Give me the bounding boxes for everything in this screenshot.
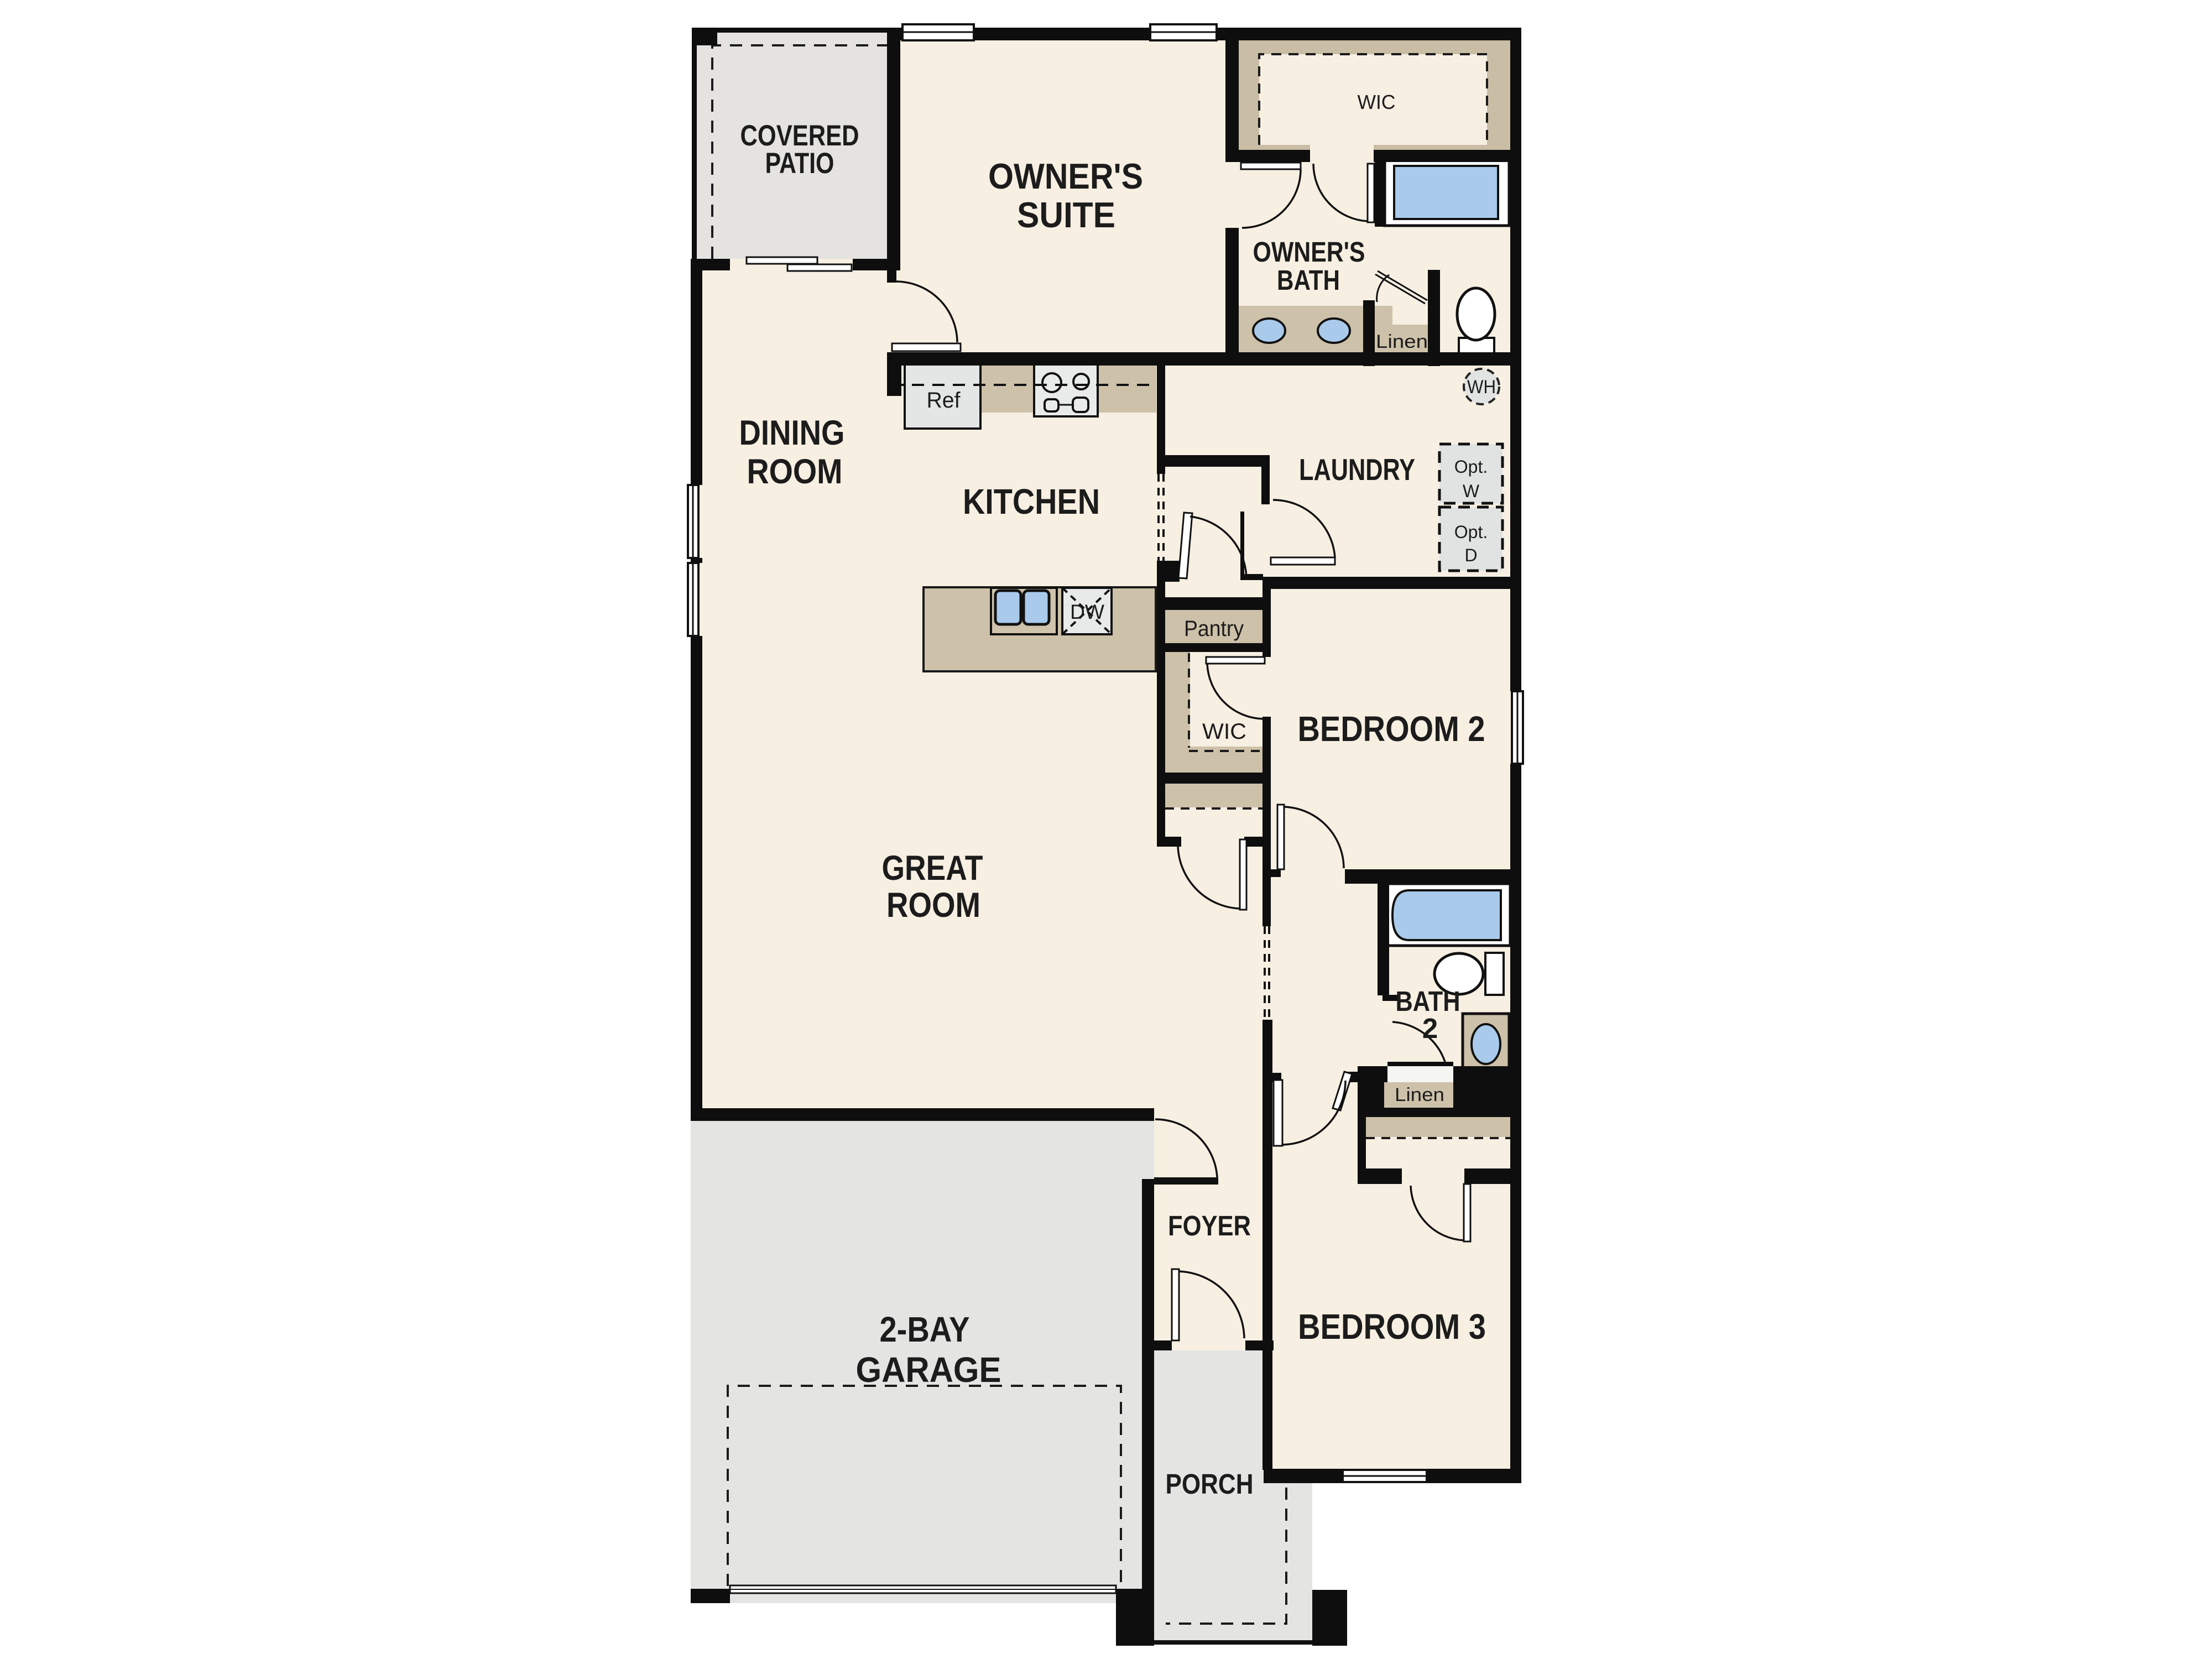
- svg-text:PATIO: PATIO: [765, 147, 834, 180]
- svg-text:GARAGE: GARAGE: [856, 1350, 1001, 1390]
- svg-text:WIC: WIC: [1202, 719, 1246, 744]
- svg-text:FOYER: FOYER: [1168, 1210, 1251, 1241]
- svg-text:DW: DW: [1070, 601, 1104, 623]
- svg-text:BEDROOM 3: BEDROOM 3: [1298, 1307, 1486, 1347]
- svg-text:DINING: DINING: [739, 414, 845, 452]
- svg-text:2-BAY: 2-BAY: [880, 1310, 970, 1349]
- svg-text:KITCHEN: KITCHEN: [963, 482, 1100, 521]
- svg-text:Linen: Linen: [1395, 1084, 1444, 1105]
- svg-text:Opt.: Opt.: [1454, 522, 1488, 542]
- svg-text:Linen: Linen: [1376, 331, 1428, 352]
- svg-text:BEDROOM 2: BEDROOM 2: [1298, 709, 1485, 749]
- svg-text:OWNER'S: OWNER'S: [1253, 236, 1365, 268]
- svg-text:BATH: BATH: [1277, 264, 1340, 296]
- svg-text:WH: WH: [1467, 377, 1496, 398]
- svg-text:PORCH: PORCH: [1166, 1468, 1254, 1500]
- svg-text:ROOM: ROOM: [747, 452, 843, 491]
- svg-text:LAUNDRY: LAUNDRY: [1299, 452, 1415, 487]
- svg-text:OWNER'S: OWNER'S: [988, 156, 1143, 196]
- svg-text:WIC: WIC: [1358, 91, 1396, 113]
- svg-text:ROOM: ROOM: [886, 886, 980, 925]
- svg-text:W: W: [1463, 481, 1480, 501]
- svg-text:2: 2: [1422, 1013, 1438, 1044]
- svg-text:Opt.: Opt.: [1454, 457, 1488, 477]
- svg-text:GREAT: GREAT: [882, 849, 983, 888]
- svg-text:Pantry: Pantry: [1184, 617, 1244, 641]
- svg-text:D: D: [1464, 545, 1477, 565]
- svg-text:Ref: Ref: [927, 388, 961, 413]
- svg-text:SUITE: SUITE: [1017, 195, 1115, 235]
